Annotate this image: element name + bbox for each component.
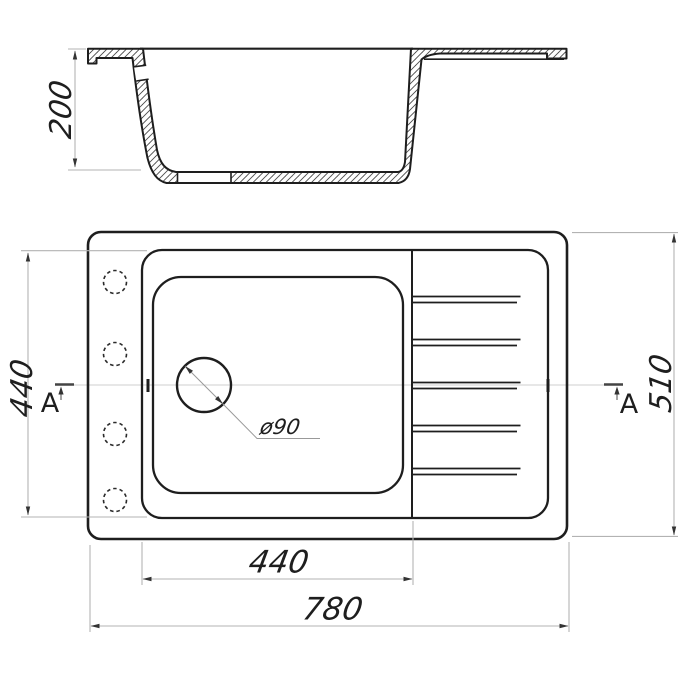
overall-depth-dimension-label: 510 <box>644 352 679 415</box>
bowl-width-dimension: 440 <box>142 521 413 585</box>
section-label-right: A <box>620 389 639 420</box>
drawing-page: 200 <box>0 0 679 679</box>
plan-view: ø90 A A 440 <box>5 232 679 632</box>
overall-width-dimension-label: 780 <box>300 592 365 628</box>
section-marker-left: A <box>41 385 74 420</box>
drain-annotation: ø90 <box>177 358 320 439</box>
bowl-depth-dimension: 440 <box>5 251 147 517</box>
overall-width-dimension: 780 <box>90 542 569 632</box>
section-view: 200 <box>44 49 566 185</box>
section-marker-right: A <box>604 385 639 421</box>
section-cut-body <box>88 49 567 183</box>
faucet-hole-markers <box>104 271 127 512</box>
drain-hole-cutout <box>178 171 232 185</box>
bowl-depth-dimension-label: 440 <box>5 357 40 420</box>
bowl-width-dimension-label: 440 <box>246 545 311 581</box>
section-label-left: A <box>41 388 60 419</box>
drain-diameter-label: ø90 <box>257 414 302 439</box>
technical-drawing: 200 <box>0 0 679 679</box>
faucet-hole-cutout <box>134 65 149 81</box>
depth-dimension-label: 200 <box>44 78 79 141</box>
depth-dimension: 200 <box>44 49 141 170</box>
